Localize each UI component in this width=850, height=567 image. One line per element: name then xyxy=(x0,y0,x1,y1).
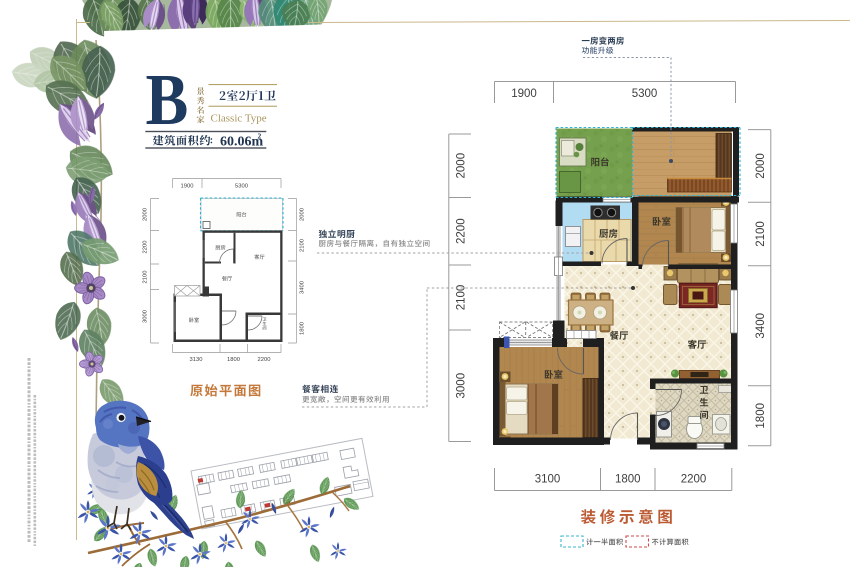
svg-text:2200: 2200 xyxy=(681,474,707,486)
svg-text:1800: 1800 xyxy=(755,403,767,429)
svg-text:3400: 3400 xyxy=(755,313,767,339)
svg-text:3100: 3100 xyxy=(535,474,561,486)
svg-text:2200: 2200 xyxy=(456,218,468,244)
svg-text:2000: 2000 xyxy=(300,208,306,221)
svg-text:2100: 2100 xyxy=(300,239,306,252)
svg-text:2000: 2000 xyxy=(143,208,149,221)
svg-text:1800: 1800 xyxy=(615,474,641,486)
svg-text:3000: 3000 xyxy=(456,373,468,399)
svg-text:3400: 3400 xyxy=(300,281,306,294)
svg-text:2100: 2100 xyxy=(755,221,767,247)
svg-text:2200: 2200 xyxy=(258,357,271,363)
svg-text:2100: 2100 xyxy=(456,285,468,311)
svg-text:5300: 5300 xyxy=(632,88,658,100)
svg-text:2200: 2200 xyxy=(143,241,149,254)
svg-text:2000: 2000 xyxy=(755,153,767,179)
svg-text:1800: 1800 xyxy=(300,322,306,335)
svg-text:3130: 3130 xyxy=(190,357,203,363)
svg-text:5300: 5300 xyxy=(235,184,248,190)
svg-text:1900: 1900 xyxy=(511,88,537,100)
svg-text:3000: 3000 xyxy=(143,310,149,323)
svg-text:2: 2 xyxy=(258,132,262,141)
svg-text:1800: 1800 xyxy=(227,357,240,363)
svg-text:2100: 2100 xyxy=(143,271,149,284)
svg-text:B: B xyxy=(146,59,189,140)
svg-text:Classic Type: Classic Type xyxy=(211,113,267,125)
svg-text:2000: 2000 xyxy=(456,153,468,179)
svg-text:1900: 1900 xyxy=(181,184,194,190)
